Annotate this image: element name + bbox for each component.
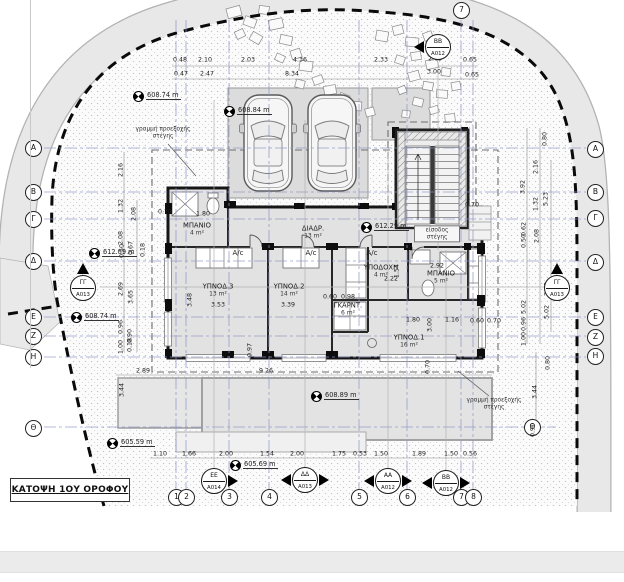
car-1 [240, 95, 297, 191]
drawing-title: ΚΑΤΟΨΗ 1ΟΥ ΟΡΟΦΟΥ [12, 485, 129, 495]
exterior-steps [469, 206, 491, 240]
floor-plan-page: ΑΒΓΔΕΖΗΘΑΒΓΔΕΖΗΘ1234567870.482.102.034.3… [0, 0, 624, 582]
drawing-title-box: ΚΑΤΟΨΗ 1ΟΥ ΟΡΟΦΟΥ [10, 478, 130, 502]
car-2 [304, 95, 361, 191]
page-border-line [30, 0, 31, 368]
footer-band [0, 551, 624, 573]
